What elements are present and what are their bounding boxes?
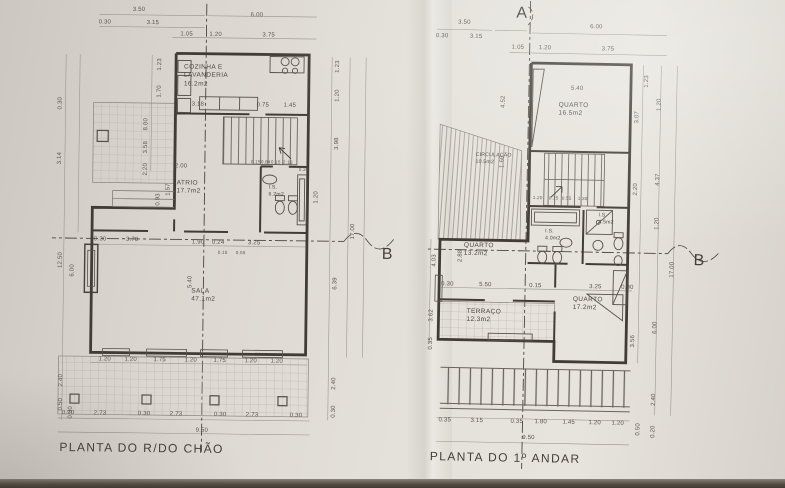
- dim-label: 3.75: [602, 46, 615, 52]
- dim-label: 8.00: [143, 118, 149, 131]
- dim-label: 2.73: [94, 410, 107, 416]
- dim-label: 0.30: [436, 33, 449, 39]
- dim-label: 6.39: [332, 277, 338, 290]
- room-label-circulation: CIRCULAÇÃO 10.5m2: [475, 152, 511, 166]
- dim-label: 1.80: [534, 419, 547, 425]
- dim-label: 5.40: [571, 86, 584, 92]
- dim-label: 0.30: [138, 411, 151, 417]
- dim-label: 2.20: [633, 183, 639, 196]
- dim-label: 1.57: [165, 183, 171, 196]
- wardrobe-bedroom1: [532, 69, 544, 147]
- room-label-terrace: TERRAÇO 12.3m2: [466, 308, 501, 326]
- room-label-wc2: I.S. 4.5m2: [598, 212, 614, 226]
- dim-label: 1.20: [184, 357, 197, 363]
- dim-label: 1.20: [539, 45, 552, 51]
- dim-label: 0.30: [331, 405, 337, 418]
- dim-label: 0.84: [261, 159, 271, 164]
- dim-label: 1.45: [562, 420, 575, 426]
- dim-label: 1.70: [157, 85, 163, 98]
- dim-label: 3.15: [147, 20, 160, 26]
- dim-label: 3.58: [143, 141, 149, 154]
- dim-label: 1.20: [124, 357, 137, 363]
- dim-label: 0.15: [251, 159, 261, 164]
- dim-label: 6.00: [69, 264, 75, 277]
- dim-label: 1.75: [153, 357, 166, 363]
- room-label-bedroom3: QUARTO 17.2m2: [573, 296, 603, 313]
- dim-label: 1.05: [512, 45, 525, 51]
- dim-label: 0.15: [271, 160, 281, 165]
- dim-label: 1.20: [657, 98, 663, 111]
- room-label-bedroom1: QUARTO 16.5m2: [558, 102, 588, 119]
- dim-label: 4.37: [655, 173, 661, 186]
- dim-label: 0.30: [441, 281, 454, 287]
- dim-label: 3.14: [57, 152, 63, 165]
- dim-label: 0.35: [438, 417, 451, 423]
- dim-label: 2.20: [143, 163, 149, 176]
- table-edge: [0, 479, 785, 488]
- dim-label: 2.16: [283, 160, 293, 165]
- room-label-wc1: I.S. 4.0m2: [545, 228, 561, 242]
- dim-label: 6.00: [590, 24, 603, 30]
- dim-label: 2.40: [651, 393, 657, 406]
- dim-label: 0.50: [635, 423, 641, 436]
- dim-label: 1.05: [180, 31, 193, 37]
- dim-label: 0.75: [257, 102, 270, 108]
- lower-terrace-grid: [58, 356, 309, 417]
- pergola-posts: [440, 367, 631, 408]
- dim-label: 0.93: [155, 193, 161, 206]
- first-floor-plan: 3.50 0.30 3.15 6.00 1.05 1.20 3.75 4.52 …: [423, 0, 742, 483]
- dim-label: 0.30: [99, 19, 112, 25]
- dim-label: 4.03: [431, 254, 437, 267]
- dim-label: 3.56: [630, 335, 636, 348]
- plan-title-ground-floor: PLANTA DO R/DO CHÃO: [59, 440, 224, 456]
- dim-label: 0.30: [621, 285, 634, 291]
- dim-label: 3.18: [192, 102, 205, 108]
- room-label-bedroom2: QUARTO 13.2m2: [464, 242, 494, 259]
- dim-label-total-width: 9.50: [522, 435, 535, 441]
- dim-label: 3.50: [133, 7, 146, 13]
- room-label-atrium: ATRIO 17.7m2: [176, 179, 200, 196]
- room-label-living: SALA 47.1m2: [191, 288, 215, 305]
- dim-label-total-width: 9.50: [196, 428, 209, 434]
- dim-label: 3.15: [470, 34, 483, 40]
- dim-label: 3.25: [589, 284, 602, 290]
- dim-label: 0.15: [218, 250, 228, 255]
- dim-label: 1.20: [588, 420, 601, 426]
- dim-label: 0.35: [428, 337, 434, 350]
- dim-label: 1.45: [284, 103, 297, 109]
- dim-label: 1.20: [611, 421, 624, 427]
- dim-label: 12.50: [58, 252, 64, 268]
- ground-floor-plan: 3.50 0.30 3.15 6.00 1.05 1.20 3.75 1.23 …: [49, 2, 407, 468]
- room-label-kitchen: COZINHA E LAVANDERIA 16.2m2: [184, 63, 229, 89]
- dim-label: 1.23: [335, 60, 341, 73]
- dim-label: 2.00: [175, 163, 188, 169]
- roof-hatch: [438, 124, 522, 241]
- dim-label: 4.52: [501, 95, 507, 108]
- dim-label: 0.55: [236, 250, 246, 255]
- dim-label: 1.20: [270, 359, 283, 365]
- room-label-wc: I.S. 6.2m2: [268, 184, 284, 198]
- architectural-drawing-photo: 3.50 0.30 3.15 6.00 1.05 1.20 3.75 1.23 …: [0, 0, 785, 488]
- dim-label: 17.00: [350, 223, 356, 239]
- dim-label: 3.98: [334, 137, 340, 150]
- section-marker-a: A: [516, 5, 527, 23]
- dim-label: 0.24: [212, 240, 225, 246]
- dim-label: 2.40: [58, 374, 64, 387]
- dim-label: 3.07: [634, 111, 640, 124]
- dim-label: 0.15: [549, 195, 559, 200]
- dim-label: 0.36: [299, 167, 309, 172]
- dim-label: 1.90: [192, 240, 205, 246]
- section-marker-b: B: [693, 252, 704, 270]
- dim-label: 0.35: [510, 419, 523, 425]
- section-marker-b: B: [382, 246, 393, 264]
- dim-label: 0.30: [290, 413, 303, 419]
- dim-label: 2.73: [170, 411, 183, 417]
- dim-label: 0.30: [94, 236, 107, 242]
- dim-label: 5.40: [187, 276, 193, 289]
- dim-label: 3.75: [262, 32, 275, 38]
- dim-label: 0.50: [58, 398, 64, 411]
- bathroom-fixtures: [262, 174, 307, 225]
- dim-label: 0.55: [562, 196, 572, 201]
- stairs: [223, 117, 298, 165]
- dim-label: 6.00: [652, 321, 658, 334]
- dim-label: 3.15: [470, 418, 483, 424]
- dim-label: 1.75: [213, 358, 226, 364]
- dim-label: 0.30: [62, 410, 75, 416]
- dim-label: 0.30: [214, 412, 227, 418]
- dim-label: 0.15: [529, 283, 542, 289]
- plan-title-first-floor: PLANTA DO 1º ANDAR: [430, 449, 581, 466]
- dim-label: 3.78: [126, 237, 139, 243]
- dim-label: 1.20: [244, 358, 257, 364]
- dim-label: 1.23: [644, 75, 650, 88]
- dim-label: 2.73: [246, 412, 259, 418]
- dim-label: 3.62: [428, 309, 434, 322]
- dim-label: 3.25: [248, 240, 261, 246]
- dim-label: 1.20: [654, 217, 660, 230]
- dim-label: 17.00: [669, 262, 675, 278]
- dim-label: 1.20: [98, 356, 111, 362]
- dim-label: 6.00: [251, 12, 264, 18]
- dim-label: 1.30: [578, 196, 588, 201]
- upper-terrace-grid: [93, 102, 176, 183]
- dim-label: 1.23: [157, 58, 163, 71]
- dim-label: 5.50: [479, 282, 492, 288]
- dim-label: 2.40: [331, 377, 337, 390]
- dim-label: 1.20: [533, 195, 543, 200]
- dim-label: 3.50: [458, 20, 471, 26]
- dim-label: 0.30: [58, 97, 64, 110]
- dim-label: 1.20: [313, 191, 319, 204]
- dim-label: 1.20: [335, 89, 341, 102]
- dim-label: 0.20: [650, 425, 656, 438]
- dim-label: 1.20: [209, 32, 222, 38]
